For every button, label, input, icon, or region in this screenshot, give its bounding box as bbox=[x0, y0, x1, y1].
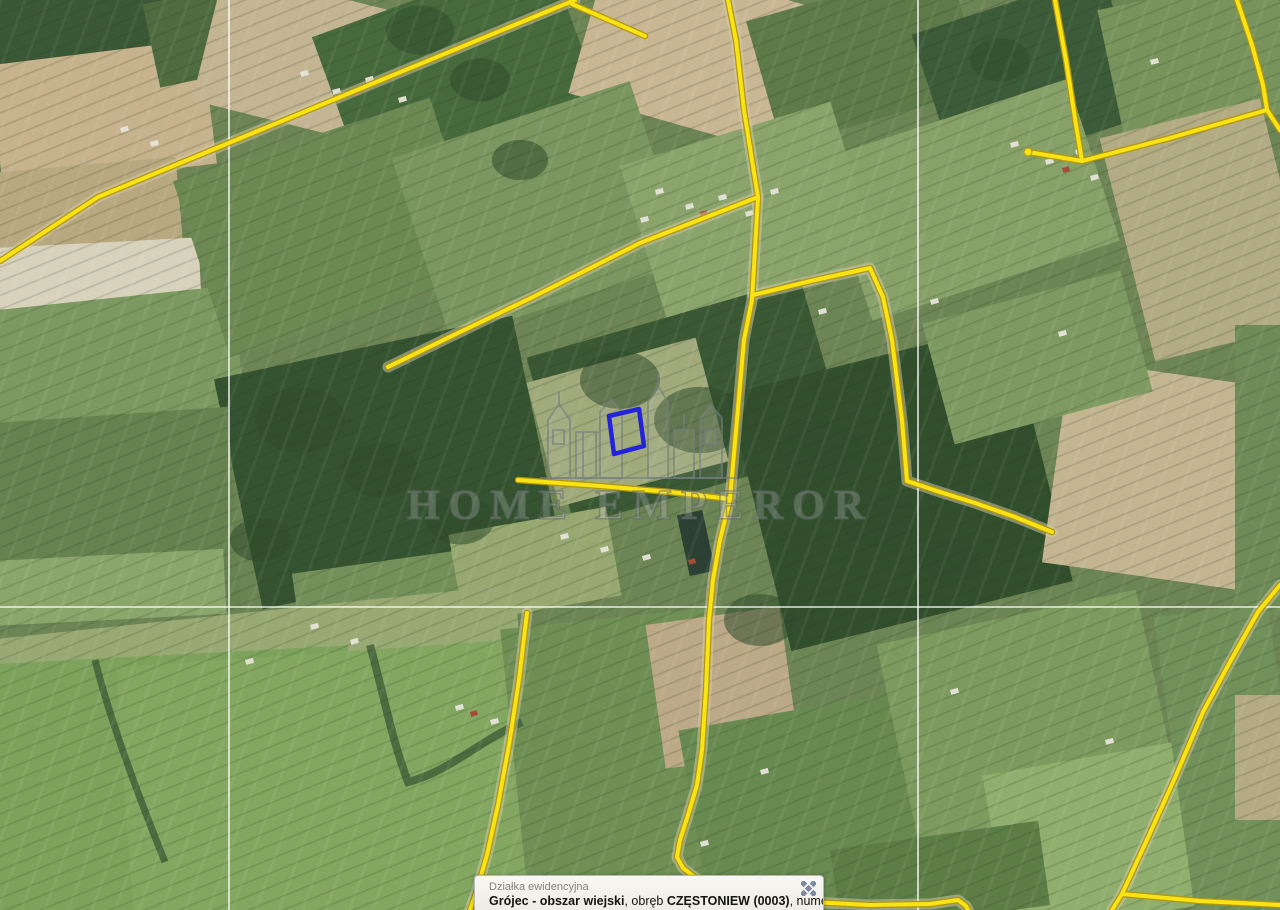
field-patches bbox=[0, 0, 1280, 910]
parcel-info-popup: Działka ewidencyjna Grójec - obszar wiej… bbox=[474, 875, 824, 910]
satellite-imagery bbox=[0, 0, 1280, 910]
popup-parcel-description: Grójec - obszar wiejski, obręb CZĘSTONIE… bbox=[489, 894, 815, 908]
map-canvas[interactable]: HOME EMPEROR Działka ewidencyjna Grójec … bbox=[0, 0, 1280, 910]
popup-title: Działka ewidencyjna bbox=[489, 881, 809, 893]
close-icon[interactable] bbox=[801, 881, 816, 896]
